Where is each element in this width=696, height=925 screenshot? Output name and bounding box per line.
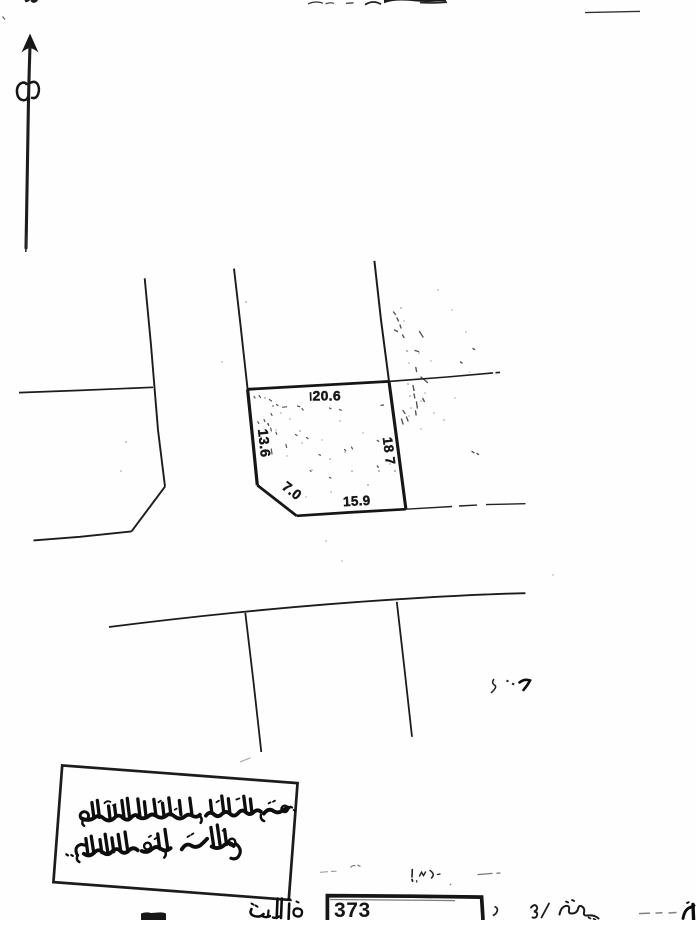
svg-text:20.6: 20.6 <box>313 387 341 403</box>
svg-text:13.6: 13.6 <box>255 428 274 458</box>
svg-text:373: 373 <box>334 899 371 920</box>
svg-text:15.9: 15.9 <box>343 493 371 509</box>
